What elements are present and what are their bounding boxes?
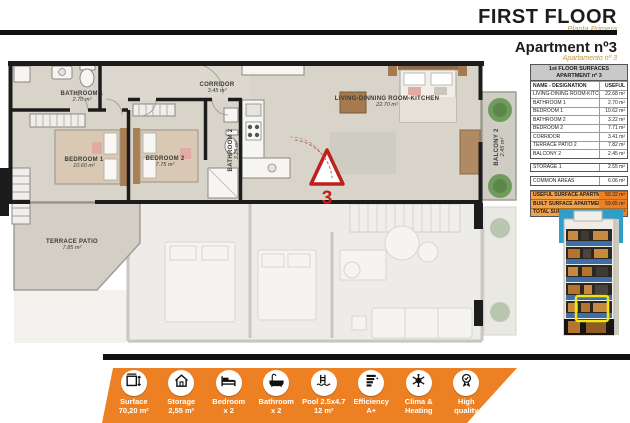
room-label-balcony: BALCONY 22.45 m²	[494, 128, 506, 165]
room-label-bedroom2: BEDROOM 27.75 m²	[145, 156, 184, 168]
header-rule	[0, 30, 617, 35]
room-label-corridor: CORRIDOR3.45 m²	[199, 82, 234, 94]
feature-item: Bathroom x 2	[253, 370, 301, 415]
room-label-living: LIVING-DINNING ROOM-KITCHEN22.70 m²	[335, 96, 439, 108]
efficiency-icon	[363, 372, 380, 394]
common-areas-row: COMMON AREAS 6.06 m²	[531, 177, 627, 185]
building-elevation	[556, 203, 626, 343]
bed-icon	[220, 372, 237, 394]
table-row: BALCONY 2 2.45 m²	[531, 149, 627, 158]
climate-icon	[410, 372, 427, 394]
table-header-row: NAME - DESIGNATION USEFUL	[531, 81, 627, 90]
quality-icon	[458, 372, 475, 394]
dimensions-icon	[125, 372, 142, 394]
room-label-terrace: TERRACE PATIO7.85 m²	[46, 239, 98, 251]
house-icon	[173, 372, 190, 394]
surfaces-table: 1st FLOOR SURFACES APARTMENT nº 3 NAME -…	[530, 64, 628, 217]
table-row: BATHROOM 2 3.22 m²	[531, 115, 627, 124]
feature-bar: Surface 70,20 m² Storage 2,55 m² Bed	[96, 366, 532, 423]
storage-row: STORAGE 1 2.55 m²	[531, 164, 627, 172]
table-row: CORRIDOR 3.41 m²	[531, 132, 627, 141]
feature-item: Efficiency A+	[348, 370, 396, 415]
feature-list: Surface 70,20 m² Storage 2,55 m² Bed	[110, 370, 490, 423]
footer-rule	[103, 354, 630, 360]
room-label-bathroom1: BATHROOM 12.70 m²	[61, 91, 104, 103]
feature-item: Storage 2,55 m²	[158, 370, 206, 415]
feature-item: Clima & Heating	[395, 370, 443, 415]
pool-icon	[315, 372, 332, 394]
apartment-title: Apartment nº3	[515, 39, 617, 56]
room-label-bedroom1: BEDROOM 110.60 m²	[64, 157, 103, 169]
marker-number: 3	[322, 188, 333, 210]
table-row: LIVING-DINING ROOM-KITCHEN 22.68 m²	[531, 90, 627, 99]
brochure-page: BATHROOM 12.70 m²BEDROOM 110.60 m²CORRID…	[0, 0, 630, 423]
feature-item: Surface 70,20 m²	[110, 370, 158, 415]
table-title: 1st FLOOR SURFACES APARTMENT nº 3	[531, 65, 627, 81]
bathtub-icon	[268, 372, 285, 394]
table-row: BEDROOM 2 7.71 m²	[531, 124, 627, 133]
total-row: USEFUL SURFACE APARTMENT 50.32 m²	[531, 191, 627, 200]
room-label-bathroom2: BATHROOM 23.25 m²	[228, 129, 240, 172]
table-row: BATHROOM 1 2.70 m²	[531, 98, 627, 107]
table-row: BEDROOM 1 10.62 m²	[531, 107, 627, 116]
feature-item: Bedroom x 2	[205, 370, 253, 415]
table-row: TERRACE PATIO 2 7.82 m²	[531, 141, 627, 150]
table-rows: LIVING-DINING ROOM-KITCHEN 22.68 m² BATH…	[531, 90, 627, 158]
floors	[566, 229, 612, 318]
apartment-subtitle: Apartamento nº 3	[563, 55, 617, 62]
feature-item: Pool 2.5x4.7 12 m²	[300, 370, 348, 415]
